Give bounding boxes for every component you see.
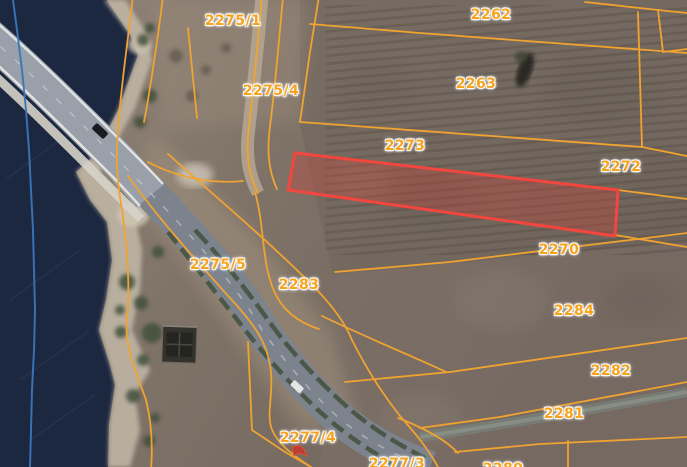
map-viewport[interactable]: 2275/1 2262 2263 2275/4 2273 2272 2270 2… <box>0 0 687 467</box>
parcel-label-2281: 2281 <box>544 406 585 422</box>
parcel-label-2272: 2272 <box>601 159 642 175</box>
parcel-label-2262: 2262 <box>471 7 512 23</box>
parcel-label-2270: 2270 <box>539 242 580 258</box>
parcel-label-2263: 2263 <box>456 76 497 92</box>
parcel-label-2277-4: 2277/4 <box>280 430 336 446</box>
map-canvas <box>0 0 687 467</box>
parcel-label-2277-3: 2277/3 <box>369 456 425 467</box>
parcel-label-2275-5: 2275/5 <box>190 257 246 273</box>
parcel-label-2280: 2280 <box>483 461 524 467</box>
parcel-label-2284: 2284 <box>554 303 595 319</box>
parcel-label-2273: 2273 <box>385 138 426 154</box>
parcel-label-2282: 2282 <box>591 363 632 379</box>
parcel-label-2283: 2283 <box>279 277 320 293</box>
building-ruin <box>162 326 197 363</box>
parcel-label-2275-4: 2275/4 <box>243 83 299 99</box>
parcel-label-2275-1: 2275/1 <box>205 13 261 29</box>
